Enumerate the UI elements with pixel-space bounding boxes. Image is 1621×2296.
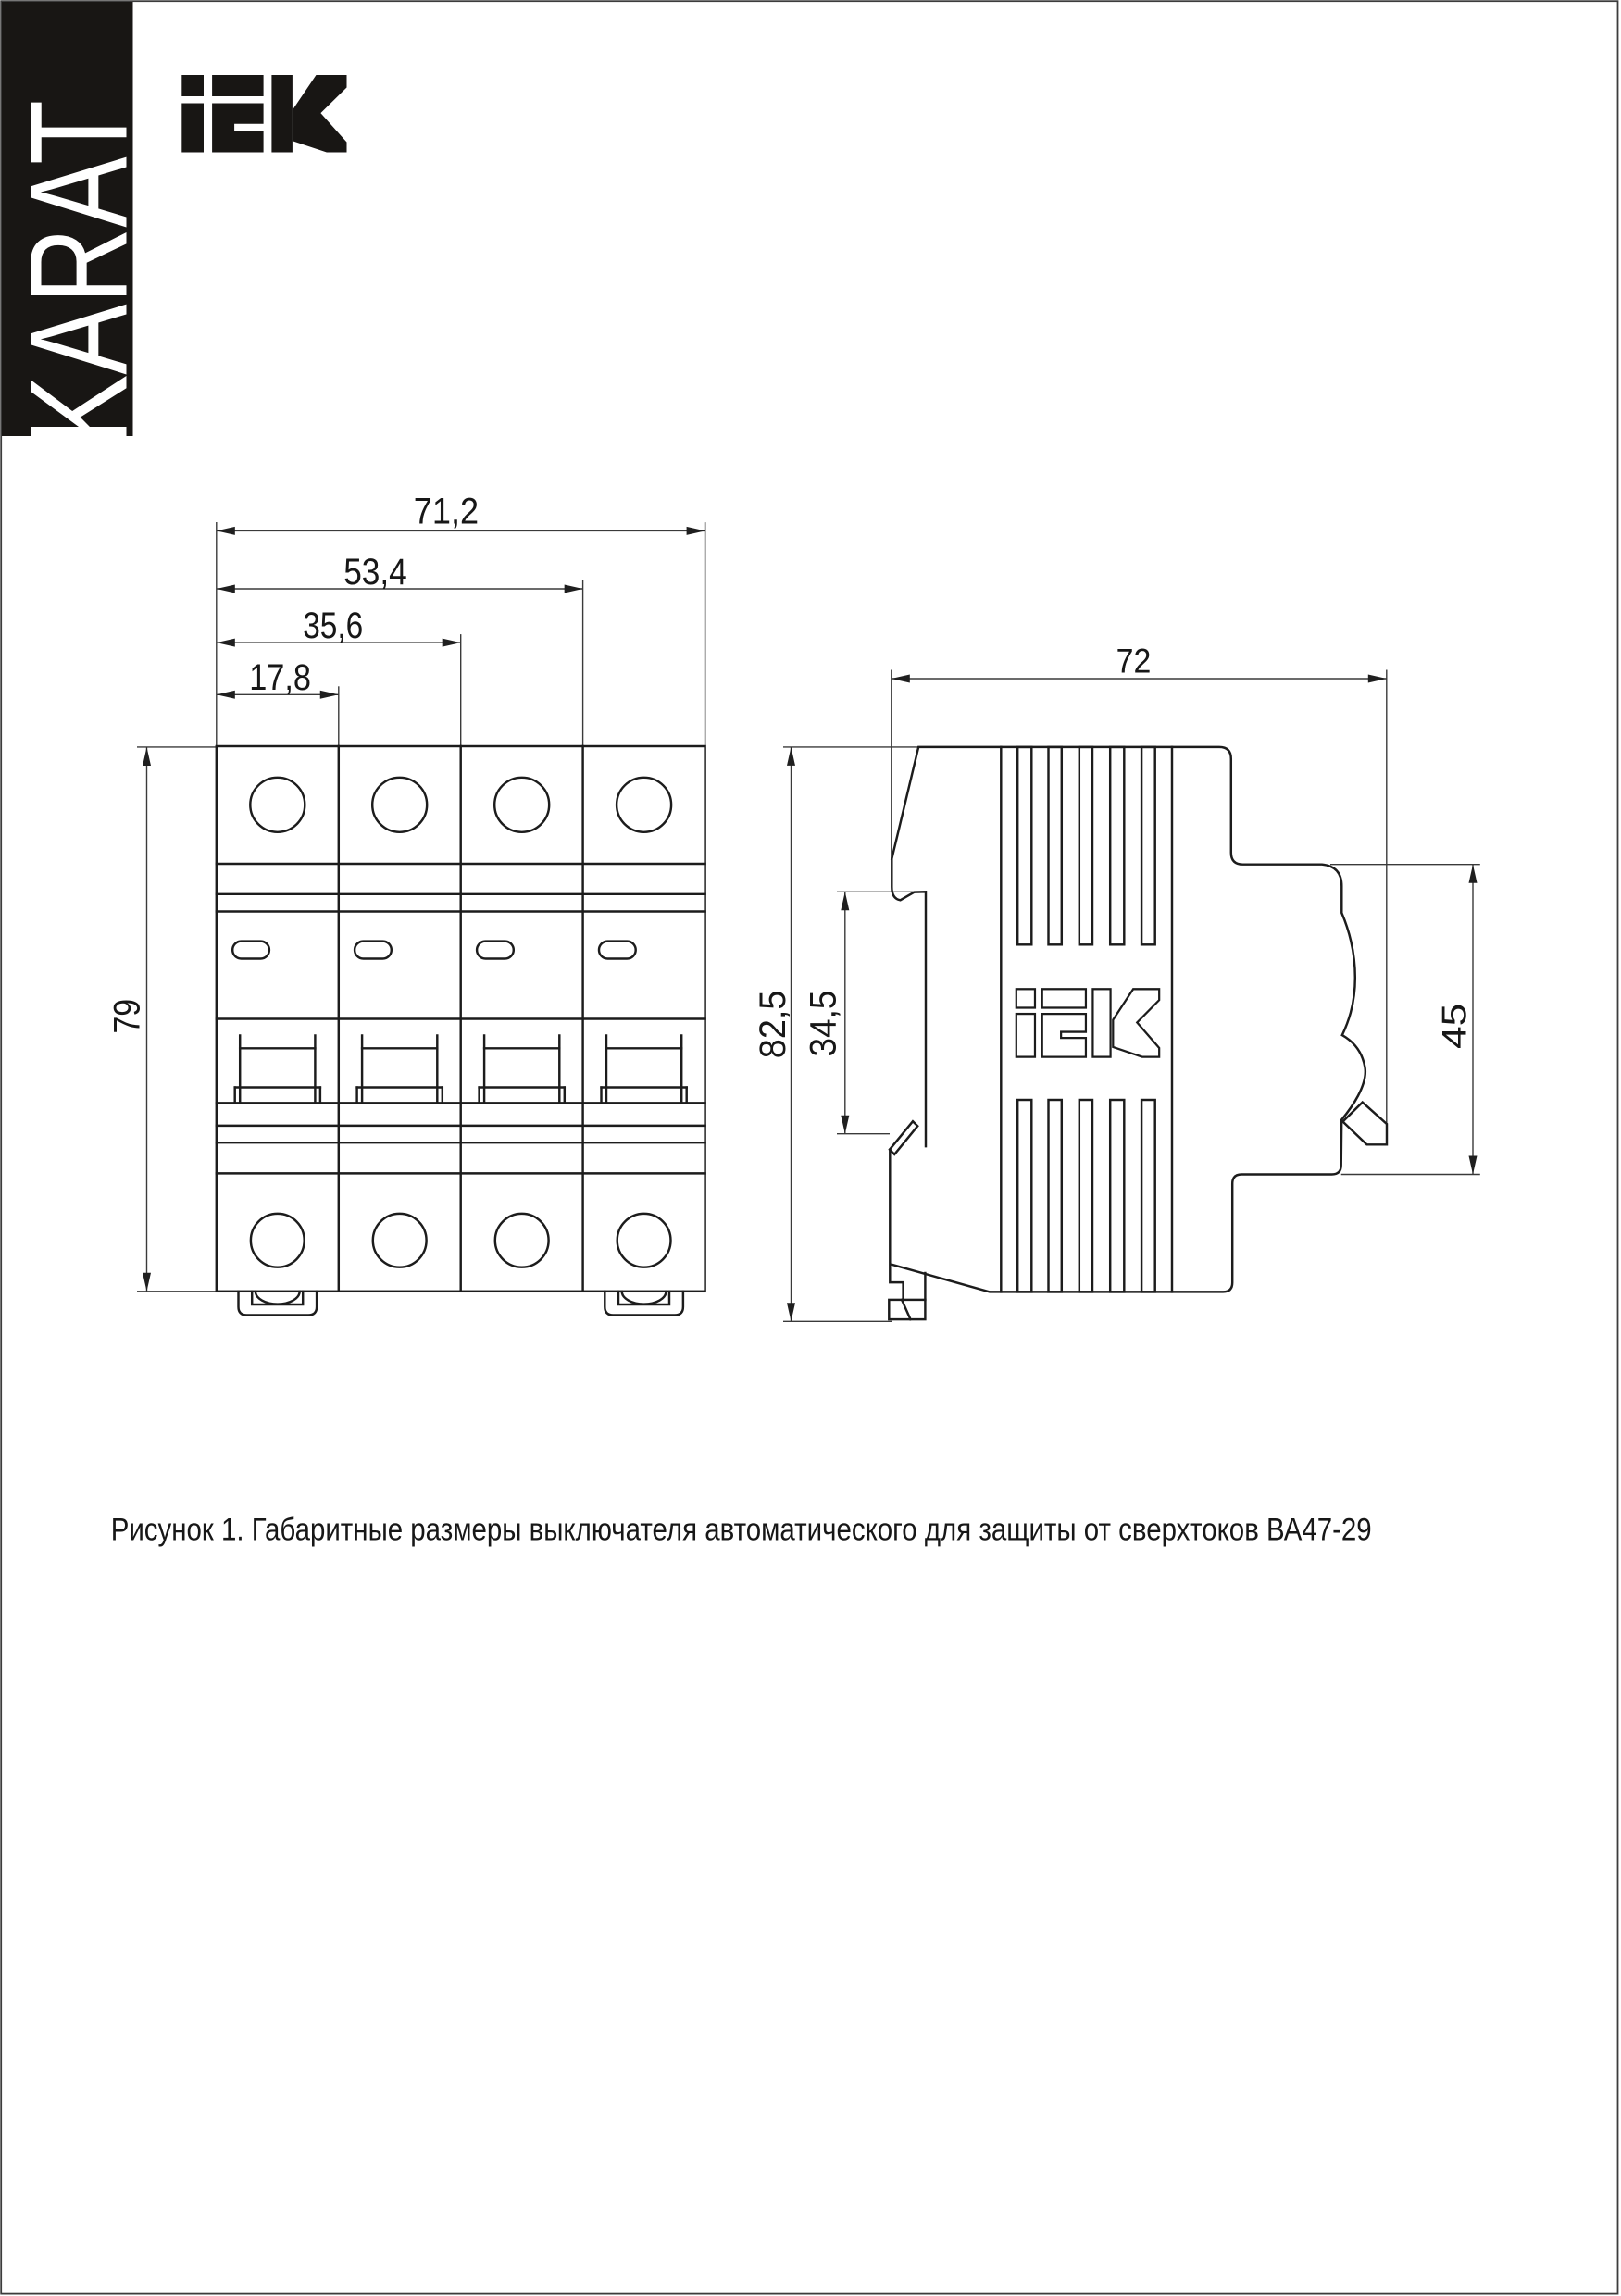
svg-text:72: 72	[1116, 643, 1152, 680]
svg-text:35,6: 35,6	[303, 605, 363, 646]
svg-text:82,5: 82,5	[753, 991, 793, 1059]
svg-text:17,8: 17,8	[249, 657, 311, 698]
svg-text:53,4: 53,4	[343, 552, 407, 593]
svg-text:45: 45	[1436, 1004, 1474, 1049]
svg-text:79: 79	[107, 999, 148, 1034]
svg-text:Рисунок 1. Габаритные размеры: Рисунок 1. Габаритные размеры выключател…	[111, 1513, 1372, 1548]
svg-text:71,2: 71,2	[414, 492, 479, 532]
svg-text:34,5: 34,5	[804, 991, 844, 1057]
svg-text:KARAT: KARAT	[1, 100, 156, 445]
